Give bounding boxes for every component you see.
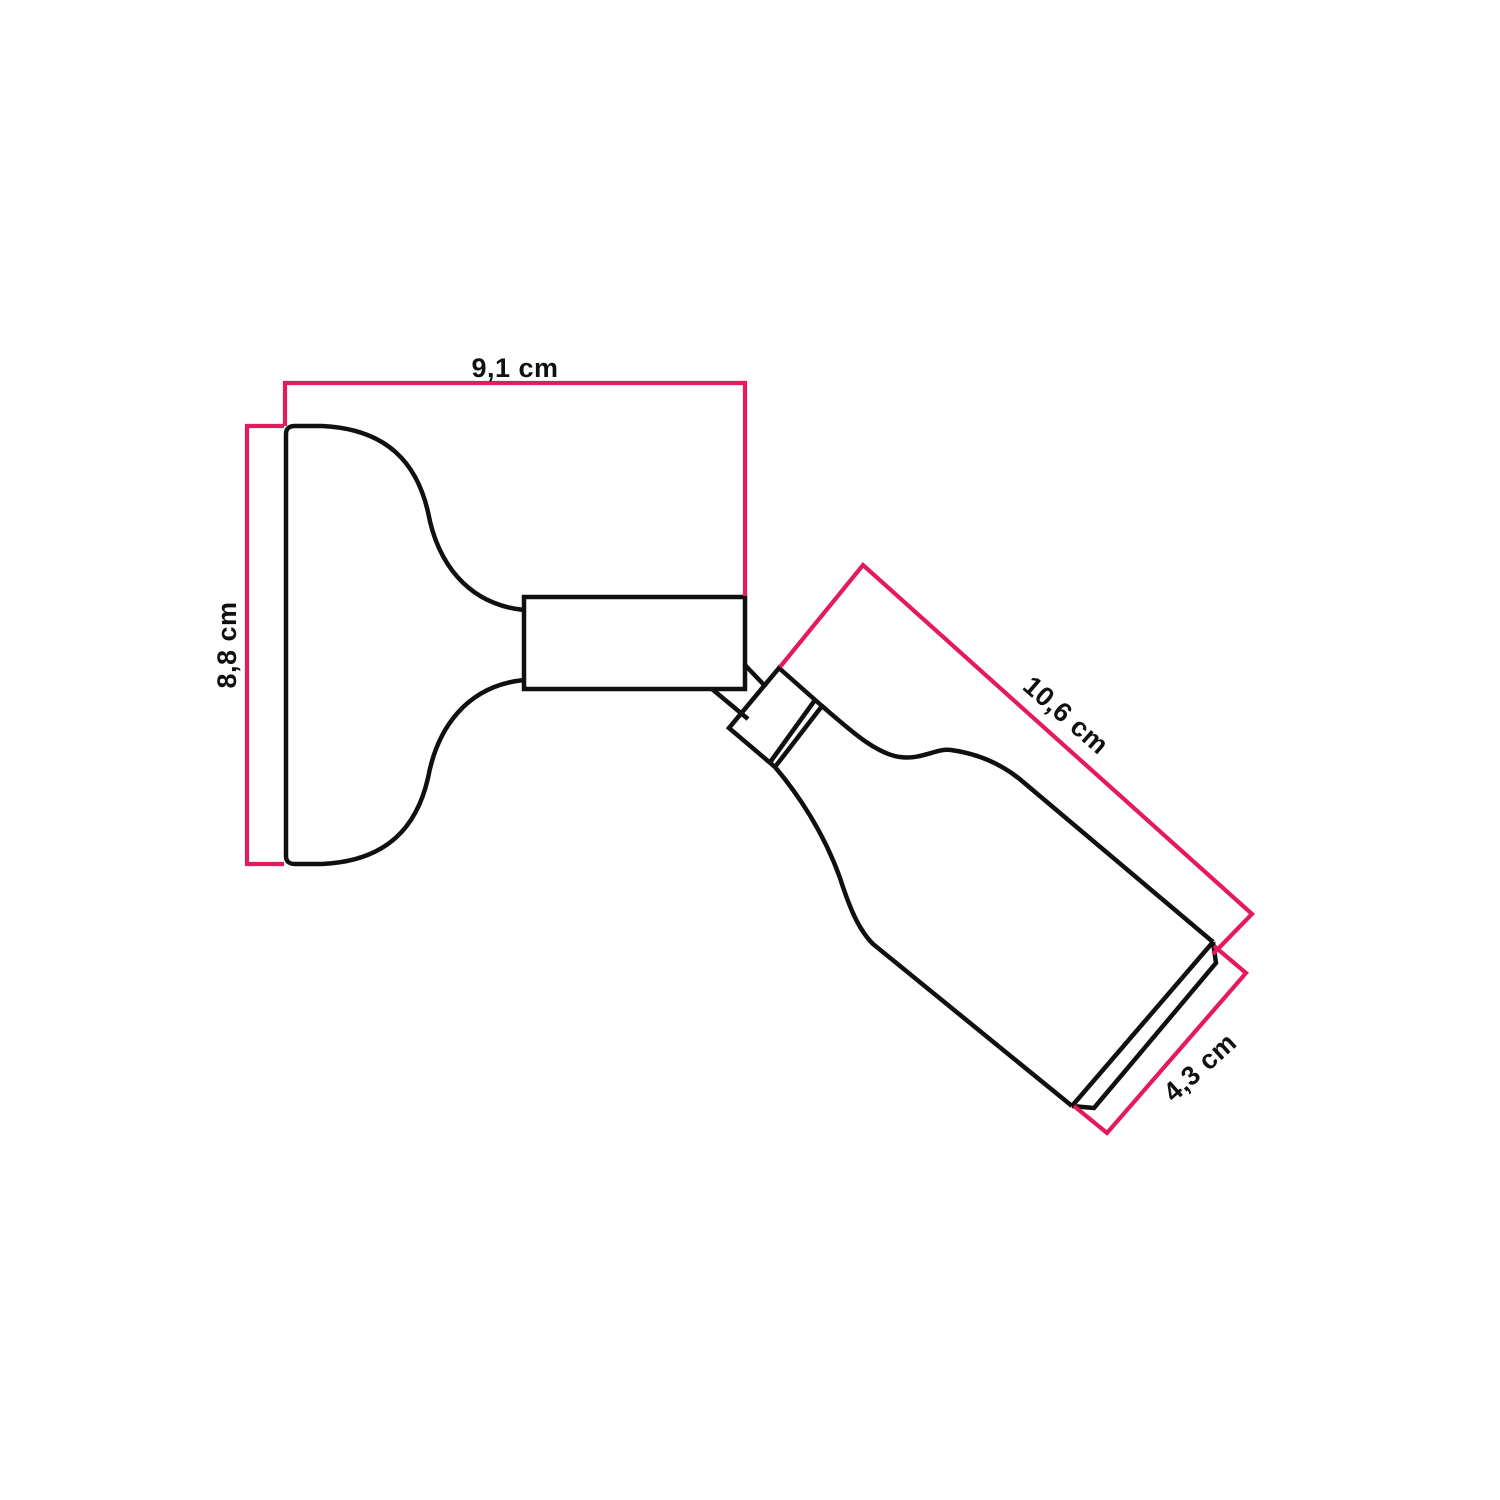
mount-cylinder	[524, 597, 745, 689]
wall-plate-outline	[286, 426, 524, 864]
base-height-label: 8,8 cm	[212, 601, 242, 688]
dimension-line-height	[247, 426, 284, 864]
dimension-line-spot-length	[780, 565, 1252, 954]
joint-cube-edge-line	[771, 700, 815, 761]
lamp-outline-group	[286, 426, 1216, 1108]
dimension-labels-group: 9,1 cm 8,8 cm 10,6 cm 4,3 cm	[212, 353, 1242, 1108]
base-width-label: 9,1 cm	[471, 353, 558, 383]
product-dimension-diagram: 9,1 cm 8,8 cm 10,6 cm 4,3 cm	[0, 0, 1500, 1500]
diagram-svg: 9,1 cm 8,8 cm 10,6 cm 4,3 cm	[0, 0, 1500, 1500]
dimension-lines-group	[247, 383, 1252, 1133]
shade-bottom-outline	[775, 767, 1072, 1106]
spot-diameter-label: 4,3 cm	[1158, 1027, 1243, 1108]
dimension-line-width	[285, 383, 745, 596]
